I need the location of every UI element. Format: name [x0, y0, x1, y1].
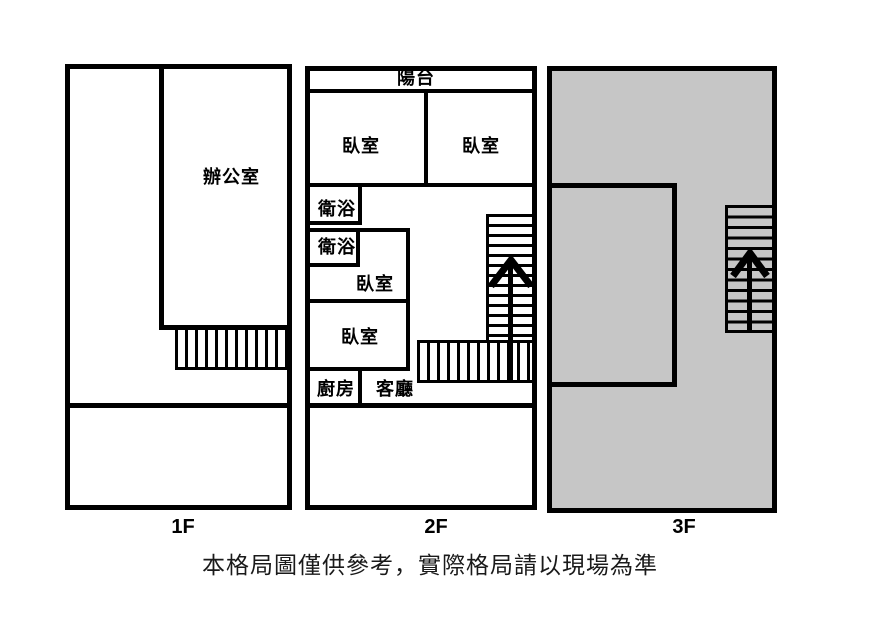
floor1-outer-wall: [65, 64, 292, 510]
kitchen-right-wall: [358, 371, 362, 403]
kitchen-label: 廚房: [317, 380, 355, 398]
staircase-1f: [175, 330, 287, 370]
balcony-label: 陽台: [397, 69, 435, 87]
bath-upper-right-wall: [358, 187, 362, 221]
bedroom-lower-label: 臥室: [341, 328, 379, 346]
floor3-label: 3F: [661, 518, 707, 536]
bedroom-top-right-label: 臥室: [462, 137, 500, 155]
stairs-up-arrow-3f-icon: [729, 246, 771, 280]
bedroom-mid-label: 臥室: [356, 275, 394, 293]
office-label: 辦公室: [203, 168, 260, 186]
bath-lower-right-wall: [356, 232, 360, 263]
living-room-label: 客廳: [376, 380, 414, 398]
bedrooms-divider-wall: [424, 93, 428, 183]
stairs-up-arrow-2f-icon: [487, 252, 535, 290]
office-left-wall: [159, 64, 164, 330]
floor1-label: 1F: [160, 518, 206, 536]
bath-upper-label: 衛浴: [318, 200, 356, 218]
bath-lower-bottom-wall: [310, 263, 360, 267]
bedrooms-bottom-wall: [310, 183, 532, 187]
floor3-inner-room: [552, 183, 677, 387]
disclaimer-text: 本格局圖僅供參考，實際格局請以現場為準: [0, 546, 860, 580]
floor2-label: 2F: [413, 518, 459, 536]
floor-plan-diagram: 辦公室 1F 陽台 臥室 臥室 衛浴 衛浴 臥室 臥室 廚房 客廳: [0, 0, 889, 621]
bedroom-top-left-label: 臥室: [342, 137, 380, 155]
bath-lower-label: 衛浴: [318, 238, 356, 256]
balcony-wall: [310, 89, 532, 93]
floor2-divider-wall: [310, 403, 532, 408]
bath-upper-bottom-wall: [310, 221, 362, 225]
staircase-2f-lower-run: [417, 340, 532, 383]
floor1-divider-wall: [70, 403, 287, 408]
